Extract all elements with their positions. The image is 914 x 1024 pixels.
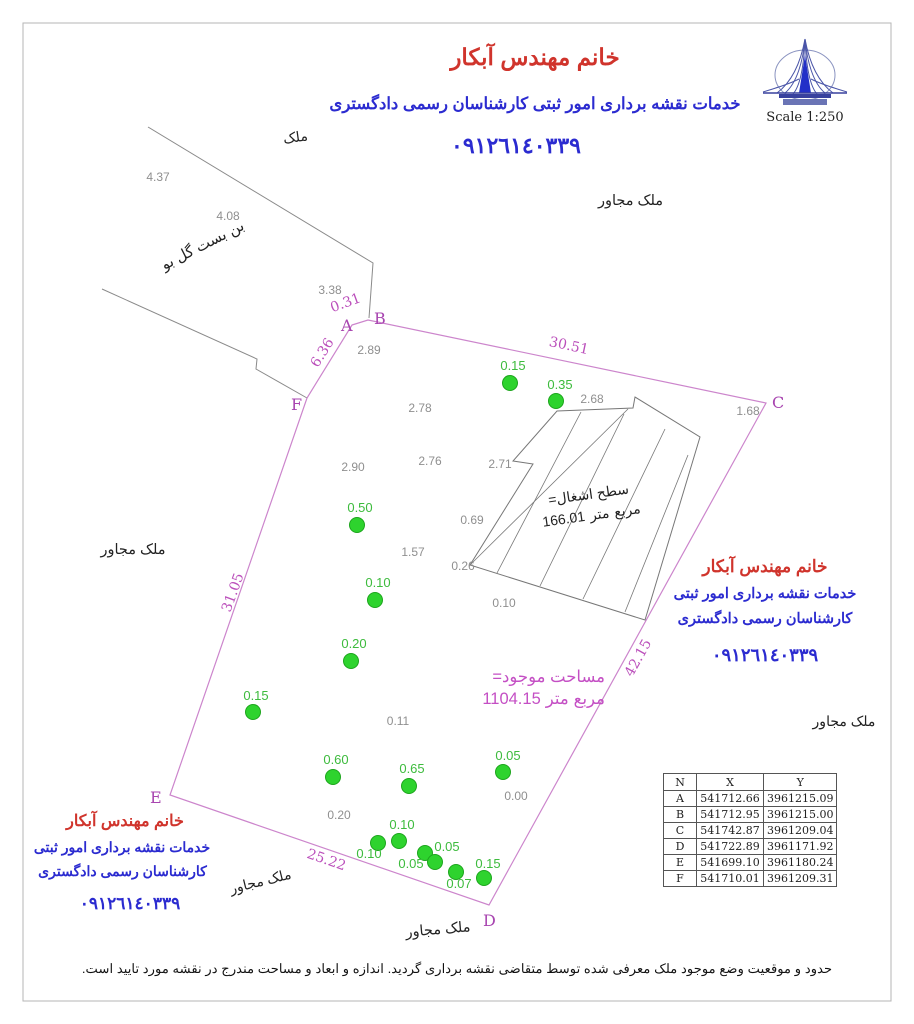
- surveyor-logo-icon: [757, 33, 853, 109]
- scale-label: Scale 1:250: [755, 110, 855, 125]
- table-cell: 541712.95: [697, 807, 764, 823]
- left-block-title: خانم مهندس آبکار: [30, 811, 220, 831]
- dimension-label: 0.69: [460, 513, 484, 527]
- dimension-label: 0.10: [492, 596, 516, 610]
- area-unit-word2: مربع: [574, 688, 605, 710]
- spot-height-label: 0.05: [495, 748, 520, 763]
- dimension-label: 0.00: [504, 789, 528, 803]
- spot-height-label: 0.05: [398, 856, 423, 871]
- page-title: خانم مهندس آبکار: [300, 44, 770, 71]
- spot-height-point: [549, 394, 564, 409]
- neighbor-boundary-line: [102, 289, 307, 398]
- table-cell: E: [664, 855, 697, 871]
- table-cell: 3961215.09: [764, 791, 837, 807]
- header-phone: ٠٩١٢٦١٤٠٣٣٩: [286, 133, 746, 159]
- area-unit-word1: متر: [546, 688, 569, 710]
- spot-height-label: 0.15: [243, 688, 268, 703]
- spot-height-point: [344, 654, 359, 669]
- dimension-label: 2.78: [408, 401, 432, 415]
- survey-sheet: 0.3130.5142.1525.2231.056.364.374.083.38…: [0, 0, 914, 1024]
- spot-height-label: 0.15: [475, 856, 500, 871]
- dimension-label: 1.68: [736, 404, 760, 418]
- table-cell: 541699.10: [697, 855, 764, 871]
- table-cell: A: [664, 791, 697, 807]
- left-block-phone: ٠٩١٢٦١٤٠٣٣٩: [35, 894, 225, 914]
- dimension-label: 0.11: [387, 714, 410, 728]
- dimension-label: 3.38: [318, 283, 342, 297]
- spot-height-point: [402, 779, 417, 794]
- spot-height-point: [350, 518, 365, 533]
- dimension-label: 2.68: [580, 392, 604, 406]
- spot-height-label: 0.15: [500, 358, 525, 373]
- spot-height-label: 0.07: [446, 876, 471, 891]
- spot-height-point: [496, 765, 511, 780]
- page-subtitle: خدمات نقشه برداری امور ثبتی کارشناسان رس…: [255, 94, 815, 114]
- spot-height-label: 0.10: [356, 846, 381, 861]
- building-unit-word1: متر: [588, 503, 610, 527]
- table-cell: B: [664, 807, 697, 823]
- spot-height-point: [477, 871, 492, 886]
- vertex-label: B: [374, 309, 386, 328]
- spot-height-point: [368, 593, 383, 608]
- table-cell: 3961171.92: [764, 839, 837, 855]
- edge-dimension-label: 25.22: [305, 846, 348, 874]
- right-block-line2: کارشناسان رسمی دادگستری: [645, 611, 885, 627]
- edge-dimension-label: 31.05: [219, 571, 248, 614]
- table-cell: 3961209.04: [764, 823, 837, 839]
- left-block-line1: خدمات نقشه برداری امور ثبتی: [22, 839, 222, 856]
- table-cell: 541722.89: [697, 839, 764, 855]
- coordinates-table: NXY A541712.663961215.09B541712.95396121…: [663, 773, 837, 887]
- table-row: F541710.013961209.31: [664, 871, 837, 887]
- coordinates-table-body: A541712.663961215.09B541712.953961215.00…: [664, 791, 837, 887]
- spot-height-point: [326, 770, 341, 785]
- vertex-label: F: [291, 395, 302, 414]
- table-cell: 541742.87: [697, 823, 764, 839]
- area-caption: مساحت موجود= 1104.15 متر مربع: [420, 666, 605, 710]
- edge-dimension-label: 30.51: [548, 334, 591, 358]
- table-header-cell: X: [697, 774, 764, 791]
- dimension-label: 0.26: [451, 559, 475, 573]
- table-header-cell: Y: [764, 774, 837, 791]
- table-row: D541722.893961171.92: [664, 839, 837, 855]
- neighbor-label-right: ملک مجاور: [798, 713, 890, 730]
- dimension-label: 2.76: [418, 454, 442, 468]
- right-block-title: خانم مهندس آبکار: [645, 557, 885, 577]
- table-row: A541712.663961215.09: [664, 791, 837, 807]
- table-row: E541699.103961180.24: [664, 855, 837, 871]
- neighbor-label-left: ملک مجاور: [83, 542, 183, 558]
- dimension-label: 2.89: [357, 343, 381, 357]
- spot-height-point: [428, 855, 443, 870]
- area-value: 1104.15: [482, 688, 540, 710]
- spot-height-label: 0.10: [365, 575, 390, 590]
- table-cell: 3961180.24: [764, 855, 837, 871]
- table-cell: 541710.01: [697, 871, 764, 887]
- vertex-label: C: [772, 393, 784, 412]
- vertex-label: E: [150, 788, 162, 807]
- table-cell: C: [664, 823, 697, 839]
- table-cell: 3961215.00: [764, 807, 837, 823]
- spot-height-point: [392, 834, 407, 849]
- table-header-cell: N: [664, 774, 697, 791]
- table-cell: 3961209.31: [764, 871, 837, 887]
- dimension-label: 4.37: [146, 170, 170, 184]
- spot-height-point: [246, 705, 261, 720]
- spot-height-label: 0.10: [389, 817, 414, 832]
- spot-height-label: 0.60: [323, 752, 348, 767]
- table-row: B541712.953961215.00: [664, 807, 837, 823]
- left-block-line2: کارشناسان رسمی دادگستری: [30, 863, 215, 880]
- spot-height-point: [503, 376, 518, 391]
- footer-note: حدود و موقعیت وضع موجود ملک معرفی شده تو…: [23, 961, 891, 977]
- spot-height-label: 0.35: [547, 377, 572, 392]
- building-unit-word2: مربع: [613, 498, 642, 522]
- coordinates-table-head: NXY: [664, 774, 837, 791]
- right-block-phone: ٠٩١٢٦١٤٠٣٣٩: [645, 645, 885, 666]
- table-header-row: NXY: [664, 774, 837, 791]
- table-row: C541742.873961209.04: [664, 823, 837, 839]
- spot-height-label: 0.05: [434, 839, 459, 854]
- spot-height-label: 0.20: [341, 636, 366, 651]
- table-cell: D: [664, 839, 697, 855]
- dimension-label: 2.90: [341, 460, 365, 474]
- spot-height-label: 0.50: [347, 500, 372, 515]
- table-cell: 541712.66: [697, 791, 764, 807]
- dimension-label: 2.71: [488, 457, 512, 471]
- area-caption-line1: مساحت موجود=: [420, 666, 605, 688]
- vertex-label: A: [340, 316, 353, 335]
- spot-height-label: 0.65: [399, 761, 424, 776]
- neighbor-label-top-right: ملک مجاور: [578, 193, 683, 209]
- area-caption-value: 1104.15 متر مربع: [420, 688, 605, 710]
- right-block-line1: خدمات نقشه برداری امور ثبتی: [645, 586, 885, 602]
- dimension-label: 1.57: [401, 545, 425, 559]
- dimension-label: 0.20: [327, 808, 351, 822]
- table-cell: F: [664, 871, 697, 887]
- edge-dimension-label: 6.36: [308, 335, 338, 370]
